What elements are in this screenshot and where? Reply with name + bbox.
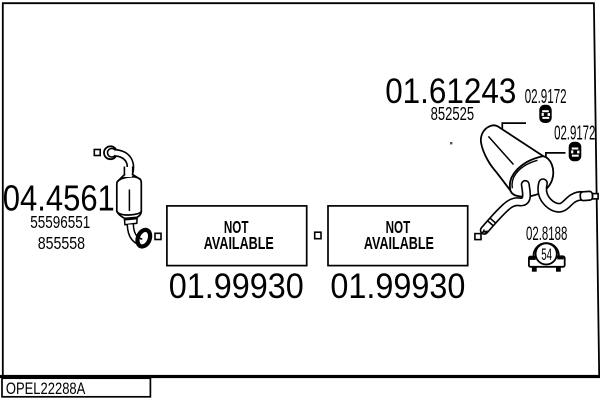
svg-text:02.9172: 02.9172 — [525, 86, 567, 108]
svg-text:AVAILABLE: AVAILABLE — [364, 233, 434, 253]
svg-text:01.99930: 01.99930 — [330, 266, 465, 306]
svg-text:54: 54 — [541, 245, 552, 264]
svg-text:02.9172: 02.9172 — [554, 123, 595, 145]
svg-text:852525: 852525 — [431, 104, 475, 124]
svg-text:OPEL22288A: OPEL22288A — [6, 379, 86, 398]
svg-text:AVAILABLE: AVAILABLE — [204, 233, 274, 253]
svg-text:01.99930: 01.99930 — [169, 266, 304, 306]
svg-text:02.8188: 02.8188 — [526, 224, 567, 245]
svg-text:55596551: 55596551 — [30, 212, 90, 232]
svg-text:855558: 855558 — [38, 233, 85, 253]
